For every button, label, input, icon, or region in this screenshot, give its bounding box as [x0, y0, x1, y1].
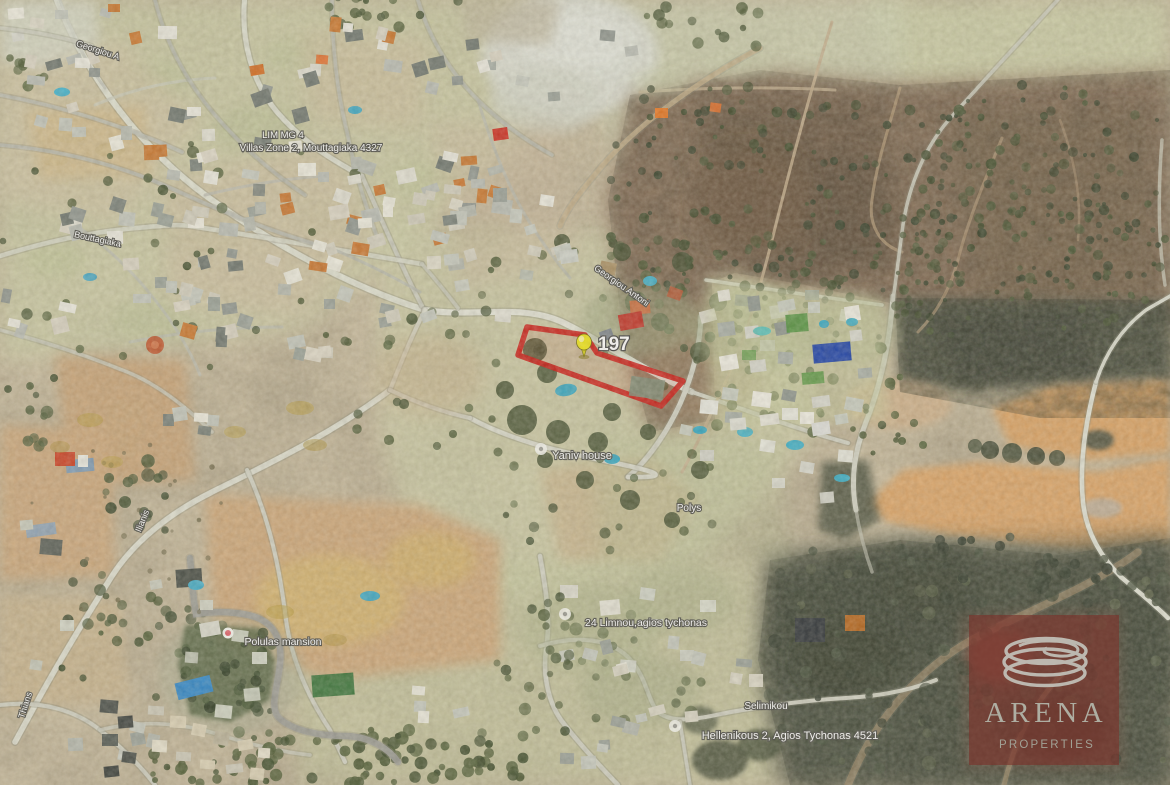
- svg-text:ARENA: ARENA: [985, 697, 1107, 729]
- svg-text:PROPERTIES: PROPERTIES: [999, 739, 1095, 751]
